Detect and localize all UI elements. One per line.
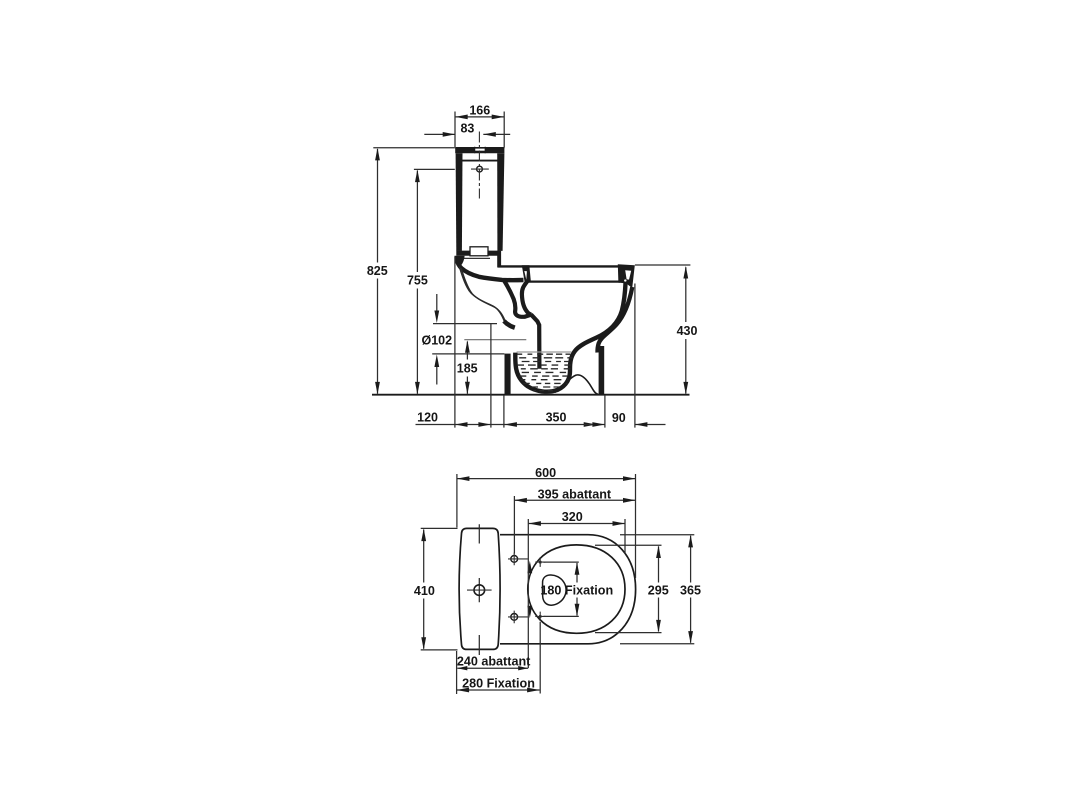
svg-text:90: 90 bbox=[612, 411, 626, 425]
svg-text:365: 365 bbox=[680, 583, 701, 597]
svg-text:Ø102: Ø102 bbox=[422, 334, 453, 348]
svg-text:825: 825 bbox=[367, 264, 388, 278]
svg-text:410: 410 bbox=[414, 584, 435, 598]
svg-text:430: 430 bbox=[677, 324, 698, 338]
svg-text:295: 295 bbox=[648, 583, 669, 597]
svg-text:395 abattant: 395 abattant bbox=[538, 488, 612, 502]
svg-text:185: 185 bbox=[457, 361, 478, 375]
svg-text:600: 600 bbox=[535, 466, 556, 480]
svg-text:166: 166 bbox=[469, 103, 490, 117]
svg-text:240 abattant: 240 abattant bbox=[457, 655, 531, 669]
svg-text:120: 120 bbox=[417, 410, 438, 424]
svg-text:350: 350 bbox=[546, 410, 567, 424]
svg-text:755: 755 bbox=[407, 274, 428, 288]
svg-text:280 Fixation: 280 Fixation bbox=[462, 676, 535, 690]
svg-text:180 Fixation: 180 Fixation bbox=[540, 583, 613, 597]
svg-text:83: 83 bbox=[460, 122, 474, 136]
svg-text:320: 320 bbox=[562, 510, 583, 524]
